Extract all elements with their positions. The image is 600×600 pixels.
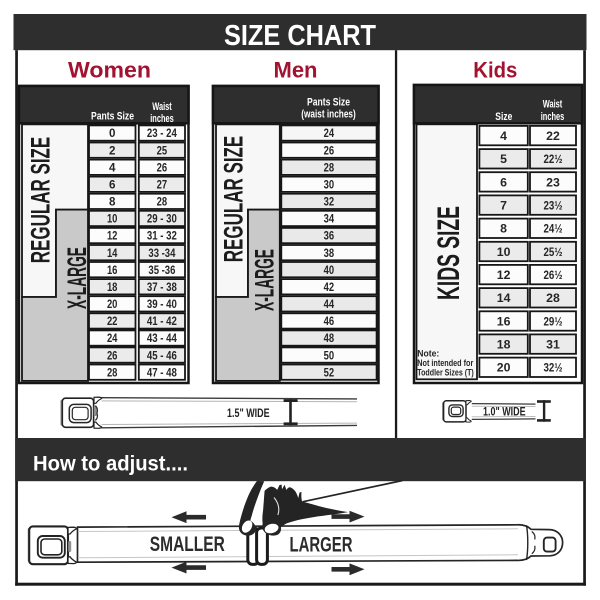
svg-text:46: 46 <box>324 315 335 328</box>
svg-text:inches: inches <box>541 111 565 123</box>
svg-text:45 - 46: 45 - 46 <box>147 349 177 362</box>
svg-text:32½: 32½ <box>544 361 563 375</box>
svg-text:REGULAR SIZE: REGULAR SIZE <box>25 137 55 264</box>
svg-text:50: 50 <box>324 349 335 362</box>
svg-text:26: 26 <box>324 144 335 157</box>
svg-text:7: 7 <box>500 199 507 213</box>
svg-text:KIDS SIZE: KIDS SIZE <box>430 206 466 300</box>
svg-text:inches: inches <box>150 113 174 125</box>
svg-text:18: 18 <box>497 338 511 352</box>
svg-text:Women: Women <box>68 57 151 82</box>
svg-text:4: 4 <box>109 161 116 174</box>
svg-text:26: 26 <box>107 349 118 362</box>
svg-text:Pants Size: Pants Size <box>307 97 350 109</box>
svg-text:27: 27 <box>157 179 168 192</box>
svg-text:8: 8 <box>109 196 116 209</box>
svg-text:12: 12 <box>107 230 118 243</box>
svg-text:34: 34 <box>324 213 335 226</box>
svg-text:Toddler Sizes (T): Toddler Sizes (T) <box>417 367 474 378</box>
svg-text:47 - 48: 47 - 48 <box>147 366 177 379</box>
svg-text:1.0" WIDE: 1.0" WIDE <box>483 405 526 419</box>
svg-text:25½: 25½ <box>544 245 563 259</box>
svg-text:48: 48 <box>324 332 335 345</box>
svg-text:40: 40 <box>324 264 335 277</box>
svg-text:42: 42 <box>324 281 335 294</box>
svg-text:2: 2 <box>109 144 115 157</box>
svg-text:Waist: Waist <box>152 101 172 113</box>
svg-text:30: 30 <box>324 179 335 192</box>
svg-text:SMALLER: SMALLER <box>150 533 225 556</box>
svg-text:43 - 44: 43 - 44 <box>147 332 177 345</box>
svg-text:10: 10 <box>497 245 511 259</box>
svg-text:44: 44 <box>324 298 335 311</box>
svg-text:25: 25 <box>157 144 168 157</box>
svg-text:6: 6 <box>109 179 116 192</box>
svg-text:37 - 38: 37 - 38 <box>147 281 177 294</box>
svg-text:28: 28 <box>107 366 118 379</box>
svg-text:SIZE CHART: SIZE CHART <box>224 20 376 52</box>
svg-text:8: 8 <box>500 222 507 236</box>
svg-text:31: 31 <box>546 338 560 352</box>
svg-text:28: 28 <box>546 291 560 305</box>
svg-text:4: 4 <box>500 129 507 143</box>
svg-text:23½: 23½ <box>544 199 563 213</box>
svg-text:Size: Size <box>495 111 512 123</box>
svg-text:41 - 42: 41 - 42 <box>147 315 177 328</box>
svg-text:22½: 22½ <box>544 152 563 166</box>
svg-text:(waist inches): (waist inches) <box>301 108 356 120</box>
svg-text:10: 10 <box>107 213 118 226</box>
svg-text:12: 12 <box>497 268 511 282</box>
svg-text:16: 16 <box>107 264 118 277</box>
svg-text:28: 28 <box>157 196 168 209</box>
svg-text:X-LARGE: X-LARGE <box>62 247 92 309</box>
svg-text:35 -36: 35 -36 <box>148 264 175 277</box>
svg-text:33 -34: 33 -34 <box>148 247 175 260</box>
svg-text:14: 14 <box>497 291 511 305</box>
svg-text:24½: 24½ <box>544 222 563 236</box>
svg-text:29½: 29½ <box>544 314 563 328</box>
svg-text:14: 14 <box>107 247 118 260</box>
svg-text:32: 32 <box>324 196 335 209</box>
svg-text:Men: Men <box>274 57 318 82</box>
svg-text:How to adjust....: How to adjust.... <box>33 453 188 476</box>
svg-text:24: 24 <box>107 332 118 345</box>
svg-text:LARGER: LARGER <box>290 534 353 557</box>
svg-text:20: 20 <box>497 361 511 375</box>
svg-text:26: 26 <box>157 161 168 174</box>
svg-text:1.5" WIDE: 1.5" WIDE <box>227 406 270 420</box>
svg-text:18: 18 <box>107 281 118 294</box>
svg-text:31 - 32: 31 - 32 <box>147 230 177 243</box>
svg-text:0: 0 <box>109 127 115 140</box>
svg-text:Kids: Kids <box>473 57 517 82</box>
svg-text:28: 28 <box>324 161 335 174</box>
svg-text:X-LARGE: X-LARGE <box>250 249 280 311</box>
svg-text:REGULAR SIZE: REGULAR SIZE <box>218 136 248 263</box>
svg-text:16: 16 <box>497 314 511 328</box>
svg-text:52: 52 <box>324 366 335 379</box>
svg-text:20: 20 <box>107 298 118 311</box>
svg-text:26½: 26½ <box>544 268 563 282</box>
svg-text:Waist: Waist <box>543 99 563 111</box>
svg-text:29 - 30: 29 - 30 <box>147 213 177 226</box>
svg-text:39 - 40: 39 - 40 <box>147 298 177 311</box>
svg-text:22: 22 <box>546 129 560 143</box>
svg-text:5: 5 <box>500 152 507 166</box>
svg-text:24: 24 <box>324 127 335 140</box>
svg-text:Pants Size: Pants Size <box>91 111 134 123</box>
svg-text:38: 38 <box>324 247 335 260</box>
svg-text:23 - 24: 23 - 24 <box>147 127 177 140</box>
svg-text:23: 23 <box>546 175 560 189</box>
svg-text:36: 36 <box>324 230 335 243</box>
svg-text:6: 6 <box>500 175 507 189</box>
svg-text:22: 22 <box>107 315 118 328</box>
